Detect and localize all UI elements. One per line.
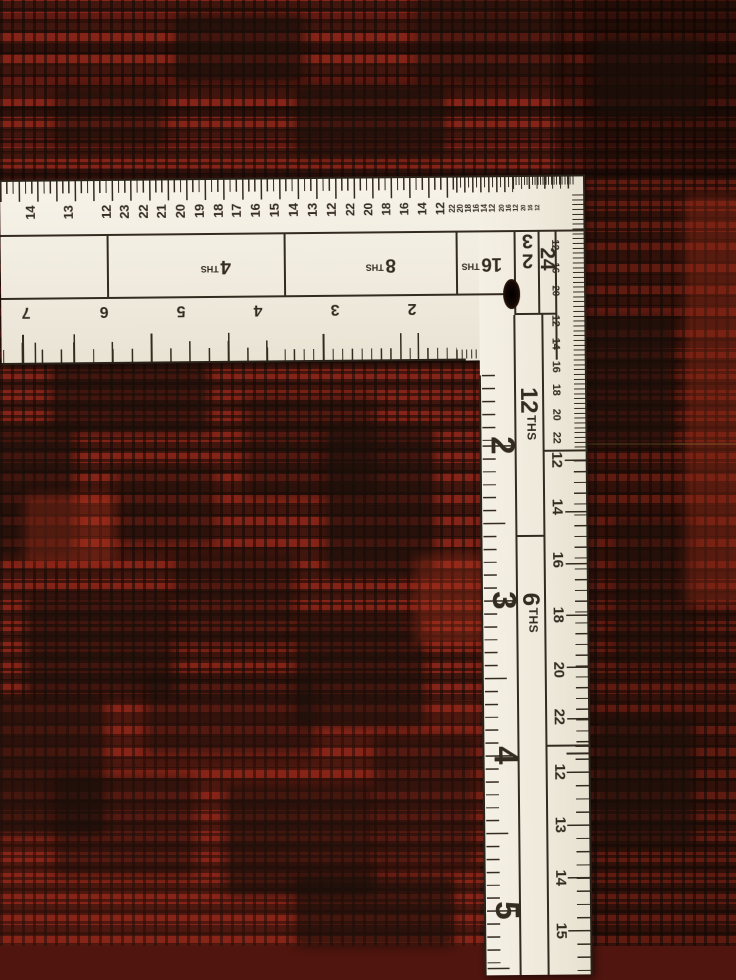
tongue-left-ticks-long xyxy=(482,372,518,972)
carpet-motif xyxy=(300,90,440,152)
scale-number: 18 xyxy=(550,384,562,396)
tongue-section-line xyxy=(515,535,544,537)
corner-24-label: 24 xyxy=(535,247,559,270)
scale-number: 22 xyxy=(550,432,562,444)
scale-number: 14 xyxy=(415,203,429,216)
inch-number: 4 xyxy=(486,746,524,764)
photo-rug-with-square: { "colors":{ "ruler_face":"#f1ecdf", "ru… xyxy=(0,0,736,946)
scale-number: 16 xyxy=(550,361,562,373)
fraction-label: 12THS xyxy=(514,387,543,441)
carpet-motif xyxy=(180,18,300,80)
scale-number: 23 xyxy=(117,205,132,219)
scale-number: 13 xyxy=(61,205,76,219)
carpet-motif xyxy=(600,42,700,114)
scale-number: 16 xyxy=(528,205,534,211)
inch-number: 3 xyxy=(331,300,340,318)
scale-number: 18 xyxy=(550,607,567,623)
scale-number: 16 xyxy=(397,203,411,216)
scale-number: 14 xyxy=(549,499,566,515)
carpet-motif xyxy=(420,0,560,82)
scale-number: 22 xyxy=(343,203,357,216)
scale-number: 20 xyxy=(173,204,188,218)
scale-number: 12 xyxy=(488,204,497,212)
framing-square: 1413122322212019181716151413122220181614… xyxy=(0,174,608,980)
scale-number: 20 xyxy=(361,203,375,216)
scale-number: 20 xyxy=(550,285,561,296)
scale-number: 14 xyxy=(286,203,301,217)
tongue-right-ticks-long xyxy=(565,449,589,744)
blade-bottom-ticks-long xyxy=(1,332,284,363)
scale-number: 21 xyxy=(154,204,169,218)
scale-number: 13 xyxy=(305,203,320,217)
scale-number: 18 xyxy=(379,203,393,216)
blade-top-ticks-long xyxy=(456,177,513,193)
fraction-label: 6THS xyxy=(516,593,544,634)
blade-bottom-ticks xyxy=(457,349,480,358)
scale-number: 14 xyxy=(550,338,562,350)
hang-hole xyxy=(503,279,520,309)
corner-32-digit: 2 xyxy=(522,248,533,271)
scale-number: 18 xyxy=(211,204,226,218)
scale-number: 12 xyxy=(551,764,568,780)
fraction-label: 8THS xyxy=(366,253,396,275)
scale-number: 20 xyxy=(521,205,527,211)
scale-number: 12 xyxy=(535,205,541,211)
inch-number: 7 xyxy=(22,303,31,321)
scale-number: 13 xyxy=(552,817,569,833)
scale-number: 16 xyxy=(506,204,513,211)
scale-number: 15 xyxy=(267,203,282,217)
scale-number: 12 xyxy=(433,202,447,215)
scale-number: 22 xyxy=(136,205,151,219)
inner-corner-fillet xyxy=(464,360,480,376)
scale-number: 16 xyxy=(549,552,566,568)
inch-number: 6 xyxy=(100,302,109,320)
scale-number: 16 xyxy=(248,204,263,218)
scale-number: 12 xyxy=(513,204,520,211)
inch-number: 5 xyxy=(177,301,186,319)
blade-top-ticks-long xyxy=(513,176,575,189)
scale-number: 20 xyxy=(499,205,506,212)
inch-number: 4 xyxy=(254,300,263,318)
scale-number: 12 xyxy=(324,203,339,217)
carpet-motif xyxy=(600,720,690,842)
scale-number: 19 xyxy=(192,204,207,218)
scale-number: 20 xyxy=(550,409,562,421)
scale-number: 12 xyxy=(548,452,565,468)
carpet-motif xyxy=(60,92,160,144)
scale-number: 20 xyxy=(550,662,567,678)
scale-number: 22 xyxy=(551,709,568,725)
fraction-label: 16THS xyxy=(461,252,502,274)
scale-number: 14 xyxy=(552,870,569,886)
fraction-label: 4THS xyxy=(201,255,231,277)
inch-number: 2 xyxy=(408,299,417,317)
inch-number: 5 xyxy=(488,901,526,919)
carpet-motif xyxy=(620,520,690,662)
scale-number: 14 xyxy=(23,206,38,220)
scale-number: 17 xyxy=(229,204,244,218)
tongue-right-ticks-long xyxy=(566,744,590,974)
carpet-red-patch xyxy=(690,200,736,600)
scale-number: 15 xyxy=(553,923,570,939)
blade-bottom-ticks-long xyxy=(284,333,456,361)
scale-number: 12 xyxy=(549,315,561,327)
scale-number: 12 xyxy=(99,205,114,219)
